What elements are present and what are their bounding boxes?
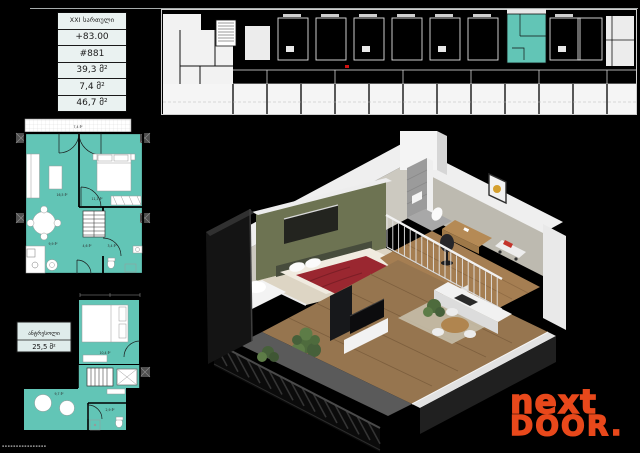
unit-area: 39,3 მ² [58, 63, 126, 80]
exterior-wall-slab [206, 209, 254, 364]
bath-area-label: 3,4 მ² [107, 244, 117, 248]
upper-floor-plan: 7,4 მ² 16,5 [13, 116, 155, 282]
watermark-microtext: ▪▪▪▪▪▪▪▪▪▪▪▪▪▪▪▪ [2, 444, 47, 448]
mezzanine-label-box: ანტრესოლი 25,5 მ² [17, 322, 71, 352]
stair-hall [78, 365, 150, 388]
building-floor-strip [160, 6, 638, 118]
elevation-label: +83.00 [58, 30, 126, 47]
mezzanine-floor-plan: ანტრესოლი 25,5 მ² 10,4 მ² 9,7 მ² 2,9 მ² [15, 293, 160, 448]
balcony-area-label: 7,4 მ² [73, 125, 83, 129]
mezzanine-area: 25,5 მ² [32, 343, 56, 351]
unit-info-table: XXI სართული +83.00 #881 39,3 მ² 7,4 მ² 4… [57, 12, 127, 112]
logo-line2: DOOR. [510, 415, 624, 438]
total-area: 46,7 მ² [58, 96, 126, 112]
bedroom: 10,4 მ² [78, 299, 140, 365]
mezzanine-title: ანტრესოლი [28, 330, 60, 337]
nextdoor-logo: next DOOR. [510, 388, 624, 438]
unit-number: #881 [58, 46, 126, 63]
hall-area-label: 4,6 მ² [82, 244, 92, 248]
dimension-line [80, 293, 140, 297]
corridor [233, 70, 636, 84]
living-area-label: 16,5 მ² [56, 193, 68, 197]
upper-units-row [245, 14, 634, 66]
floor-label: XXI სართული [58, 13, 126, 30]
bedroom-area-label: 11,1 მ² [91, 197, 103, 201]
stairs [83, 211, 105, 237]
kitchen-area-label: 9,9 მ² [48, 242, 58, 246]
red-marker [345, 65, 349, 68]
highlighted-unit [507, 9, 546, 63]
lower-units-row [163, 84, 636, 114]
bedroom-area-label: 10,4 მ² [99, 351, 111, 355]
lounge-area-label: 9,7 მ² [54, 392, 64, 396]
balcony: 7,4 მ² [25, 119, 131, 132]
balcony-area: 7,4 მ² [58, 79, 126, 96]
bath-area-label: 2,9 მ² [105, 408, 115, 412]
